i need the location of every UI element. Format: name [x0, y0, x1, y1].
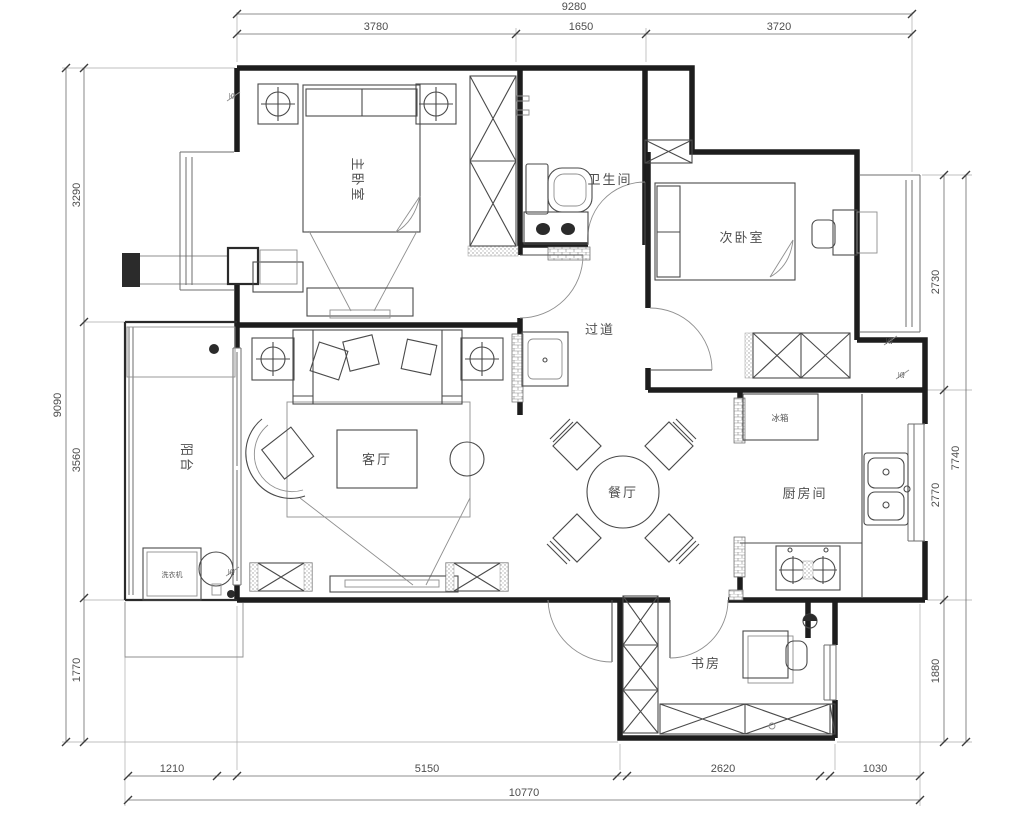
- dim-left-seg-2: 3560: [71, 448, 83, 472]
- label-balcony: 阳台: [179, 443, 194, 473]
- label-bathroom: 卫生间: [587, 172, 632, 187]
- label-dining-room: 餐厅: [608, 485, 638, 500]
- dim-left-seg-1: 3290: [71, 183, 83, 207]
- dim-right-seg-1: 2730: [930, 270, 942, 294]
- dim-right-seg-2: 2770: [930, 483, 942, 507]
- svg-text:空: 空: [228, 93, 237, 100]
- label-master-bedroom: 主卧室: [350, 157, 365, 202]
- floor-plan-page: 9280 3780 1650 3720 9090 3290 3560 1770 …: [0, 0, 1024, 824]
- label-fridge: 冰箱: [771, 413, 789, 423]
- dim-right-seg-3: 1880: [930, 659, 942, 683]
- dim-bottom-seg-1: 1210: [160, 763, 184, 775]
- dim-top-seg-1: 3780: [364, 21, 388, 33]
- svg-text:空: 空: [897, 372, 906, 379]
- label-living-room: 客厅: [362, 452, 392, 467]
- dim-top-seg-3: 3720: [767, 21, 791, 33]
- label-corridor: 过道: [585, 322, 615, 337]
- dim-top-total: 9280: [562, 1, 586, 13]
- dim-bottom-seg-2: 5150: [415, 763, 439, 775]
- dim-right-total: 7740: [950, 446, 962, 470]
- svg-text:空: 空: [885, 338, 894, 345]
- label-washing-machine: 洗衣机: [162, 570, 183, 579]
- dim-bottom-seg-3: 2620: [711, 763, 735, 775]
- dim-bottom-total: 10770: [509, 787, 540, 799]
- label-study: 书房: [691, 656, 721, 671]
- dim-left-total: 9090: [52, 393, 64, 417]
- dim-top-seg-2: 1650: [569, 21, 593, 33]
- canvas-background: [0, 0, 1024, 824]
- label-second-bedroom: 次卧室: [719, 230, 764, 245]
- balcony-tap: [209, 344, 219, 354]
- dim-bottom-seg-4: 1030: [863, 763, 887, 775]
- floor-plan-drawing: 9280 3780 1650 3720 9090 3290 3560 1770 …: [0, 0, 1024, 824]
- dim-left-seg-3: 1770: [71, 658, 83, 682]
- label-kitchen: 厨房间: [782, 486, 827, 501]
- svg-text:空: 空: [227, 569, 236, 576]
